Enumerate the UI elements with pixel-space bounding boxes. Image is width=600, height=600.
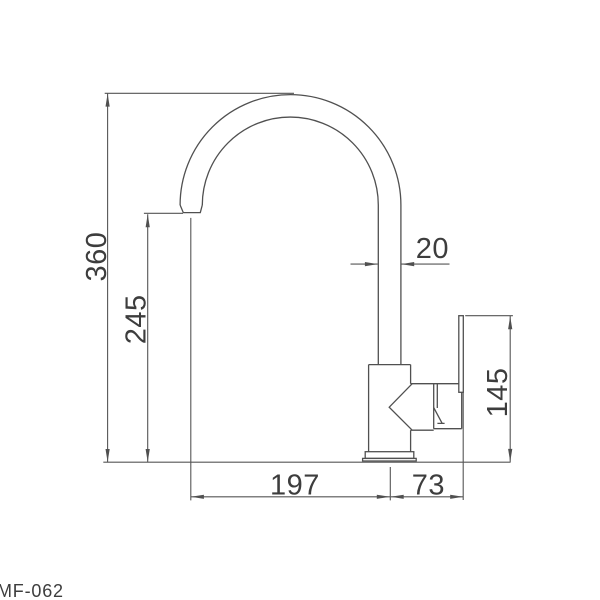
spout-inner-curve (202, 117, 378, 365)
base-collar (365, 452, 414, 459)
handle-cone (389, 384, 412, 431)
label-spout-outlet-height: 245 (120, 294, 152, 344)
dim-245-arrow-bottom (146, 449, 150, 462)
dimension-lines (103, 93, 513, 500)
handle-plate (459, 316, 464, 393)
dim-360-line (105, 93, 294, 462)
spout-outlet-tip (180, 205, 202, 213)
label-total-height: 360 (81, 232, 113, 282)
dim-197-arrow-left (191, 495, 204, 499)
dim-73-arrow-left (391, 495, 404, 499)
valve-neck (434, 384, 438, 429)
dim-20-arrow-left (365, 262, 378, 266)
dimension-labels: 360 245 20 145 197 73 (81, 232, 514, 502)
dim-73-arrow-right (450, 495, 463, 499)
label-handle-top-height: 145 (482, 367, 514, 417)
dim-145-arrow-top (508, 316, 512, 329)
label-spout-reach: 197 (270, 469, 320, 501)
technical-drawing: 360 245 20 145 197 73 MF-062 (0, 0, 600, 600)
base-plate (363, 458, 417, 461)
spout-outer-curve (180, 95, 401, 365)
dim-360-arrow-bottom (106, 449, 110, 462)
label-handle-offset: 73 (412, 469, 445, 501)
label-spout-pipe-width: 20 (416, 233, 449, 265)
dim-245-arrow-top (146, 214, 150, 227)
dim-20-arrow-right (401, 262, 414, 266)
dim-197-arrow-right (377, 495, 390, 499)
handle-cone-edges (411, 384, 459, 431)
faucet-dimension-drawing-page: 360 245 20 145 197 73 MF-062 (0, 0, 600, 600)
dim-360-arrow-top (106, 94, 110, 107)
model-number: MF-062 (0, 581, 64, 600)
lever-pivot (434, 408, 445, 424)
dim-145-arrow-bottom (508, 449, 512, 462)
faucet-outline (180, 95, 463, 461)
